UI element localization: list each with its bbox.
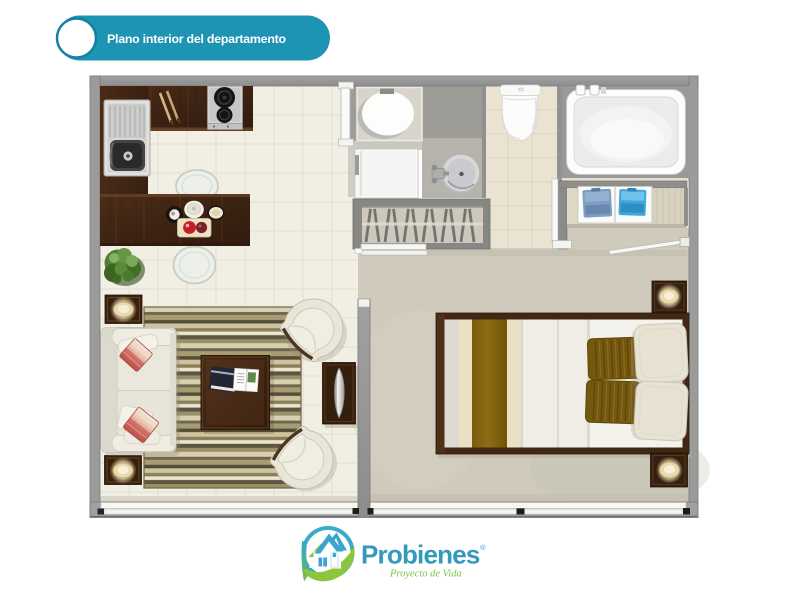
svg-text:®: ® (480, 543, 486, 552)
svg-text:Plano interior del departament: Plano interior del departamento (107, 32, 287, 46)
svg-text:Probienes: Probienes (361, 540, 480, 570)
svg-text:Proyecto de Vida: Proyecto de Vida (389, 569, 462, 580)
